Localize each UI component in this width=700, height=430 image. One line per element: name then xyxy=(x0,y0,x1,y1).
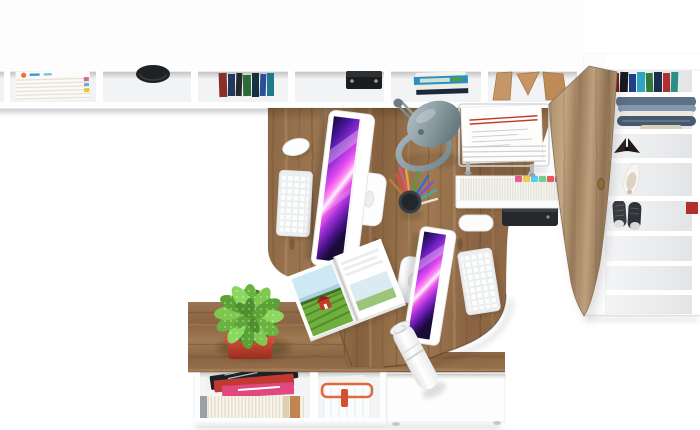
black-bowl xyxy=(136,65,170,83)
stacked-books xyxy=(414,71,469,95)
sideboard-divider xyxy=(310,372,318,422)
drawer-unit xyxy=(387,371,505,426)
shelf-top-face xyxy=(0,0,584,72)
render-canvas xyxy=(0,0,700,430)
potted-plant xyxy=(213,283,290,359)
door-handle xyxy=(598,179,604,190)
speaker-box xyxy=(346,71,382,89)
document-tray xyxy=(459,104,549,177)
red-box xyxy=(686,202,698,214)
wall-shelf xyxy=(0,0,584,117)
office-top-view-scene xyxy=(0,0,700,430)
folded-jeans xyxy=(616,96,696,131)
cable-grommet xyxy=(459,215,493,231)
magazine-stack xyxy=(16,70,91,101)
